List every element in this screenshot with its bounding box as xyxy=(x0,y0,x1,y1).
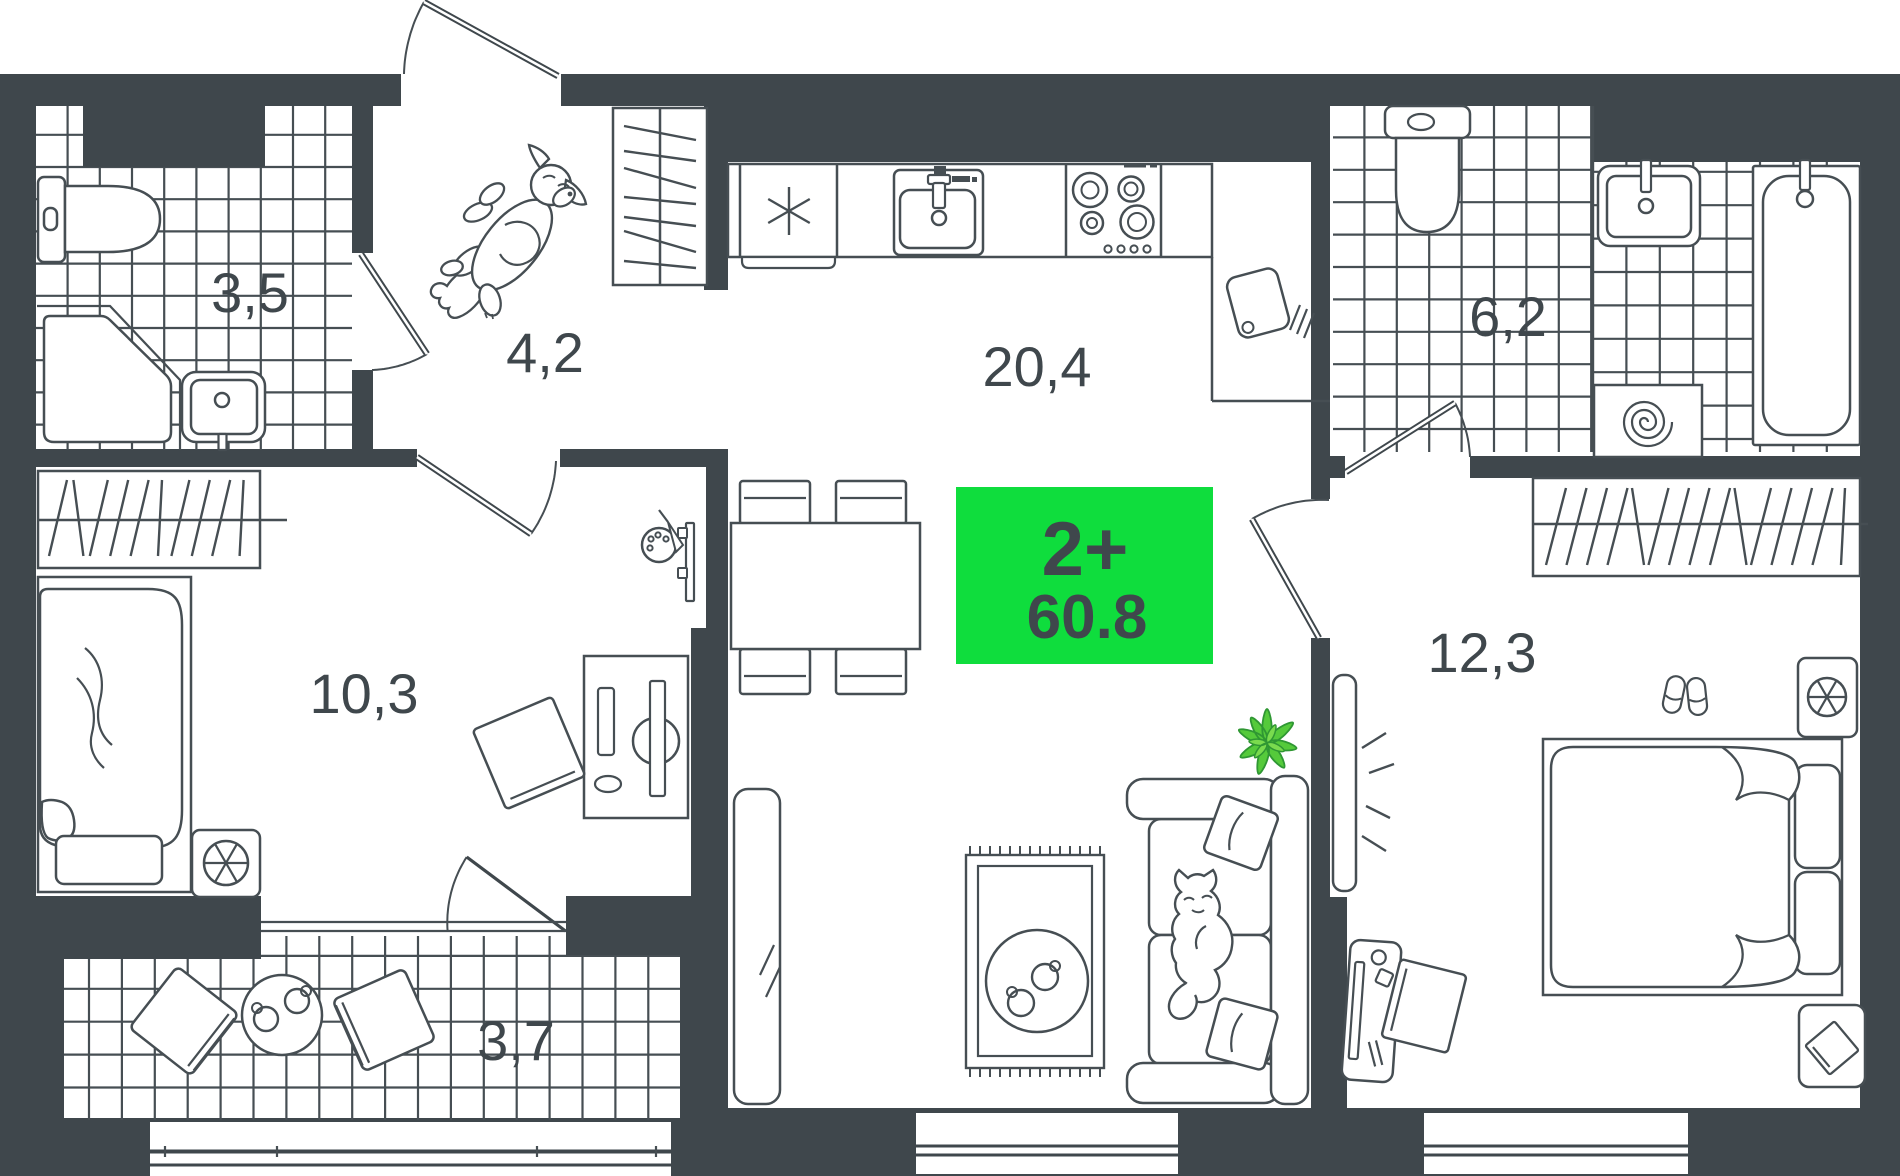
svg-text:3,5: 3,5 xyxy=(211,261,289,324)
svg-text:20,4: 20,4 xyxy=(983,335,1092,398)
svg-text:10,3: 10,3 xyxy=(310,662,419,725)
svg-text:4,2: 4,2 xyxy=(506,321,584,384)
svg-text:3,7: 3,7 xyxy=(477,1009,555,1072)
svg-text:12,3: 12,3 xyxy=(1428,621,1537,684)
svg-text:2+: 2+ xyxy=(1042,507,1129,592)
svg-text:6,2: 6,2 xyxy=(1469,285,1547,348)
svg-text:60.8: 60.8 xyxy=(1027,583,1148,652)
